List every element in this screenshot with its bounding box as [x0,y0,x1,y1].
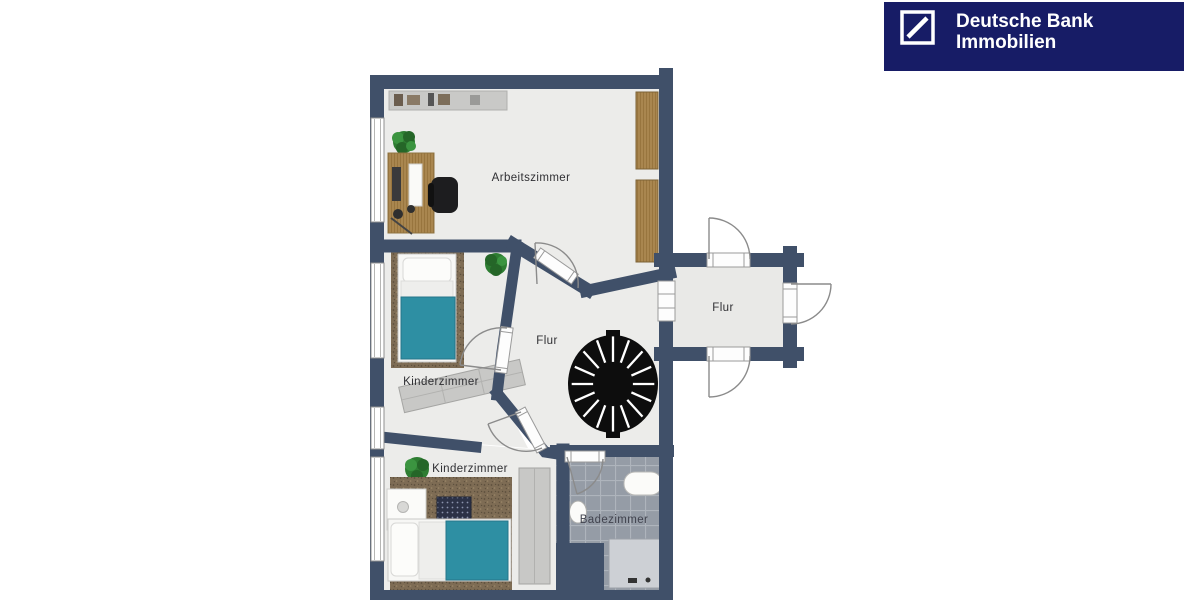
window [371,263,384,358]
logo-block: Deutsche Bank Immobilien [884,2,1184,71]
kinderzimmer-mitte-label: Kinderzimmer [403,376,479,388]
bathtub [624,472,662,495]
arbeitszimmer-label: Arbeitszimmer [492,172,571,184]
logo-brand-line2: Immobilien [956,32,1056,53]
blanket [401,297,455,359]
door-eingang-sued [707,347,750,397]
kinderzimmer-unten-furniture [387,457,550,597]
bed [388,519,511,581]
flur-eingang-label: Flur [712,302,733,314]
wardrobe [636,92,658,169]
door-eingang-ost [783,283,831,324]
passage-flur-eingang [658,281,675,321]
badezimmer-label: Badezimmer [580,514,649,526]
shower [609,539,661,588]
windows [371,118,384,561]
badezimmer-wall-notch [556,543,604,593]
office-chair [428,177,458,213]
kinderzimmer-unten-label: Kinderzimmer [432,463,508,475]
logo-brand-line1: Deutsche Bank [956,11,1094,32]
bed [398,254,456,362]
flur-haupt-label: Flur [536,335,557,347]
blanket [446,521,508,580]
wardrobe [636,180,658,262]
floorplan-page: Arbeitszimmer Kinderzimmer Kinderzimmer … [0,0,1200,600]
window [371,118,384,222]
window [371,407,384,449]
door-eingang-nord [707,218,750,267]
wardrobe [519,468,550,584]
window [371,457,384,561]
floorplan-canvas: Arbeitszimmer Kinderzimmer Kinderzimmer … [0,0,1200,600]
